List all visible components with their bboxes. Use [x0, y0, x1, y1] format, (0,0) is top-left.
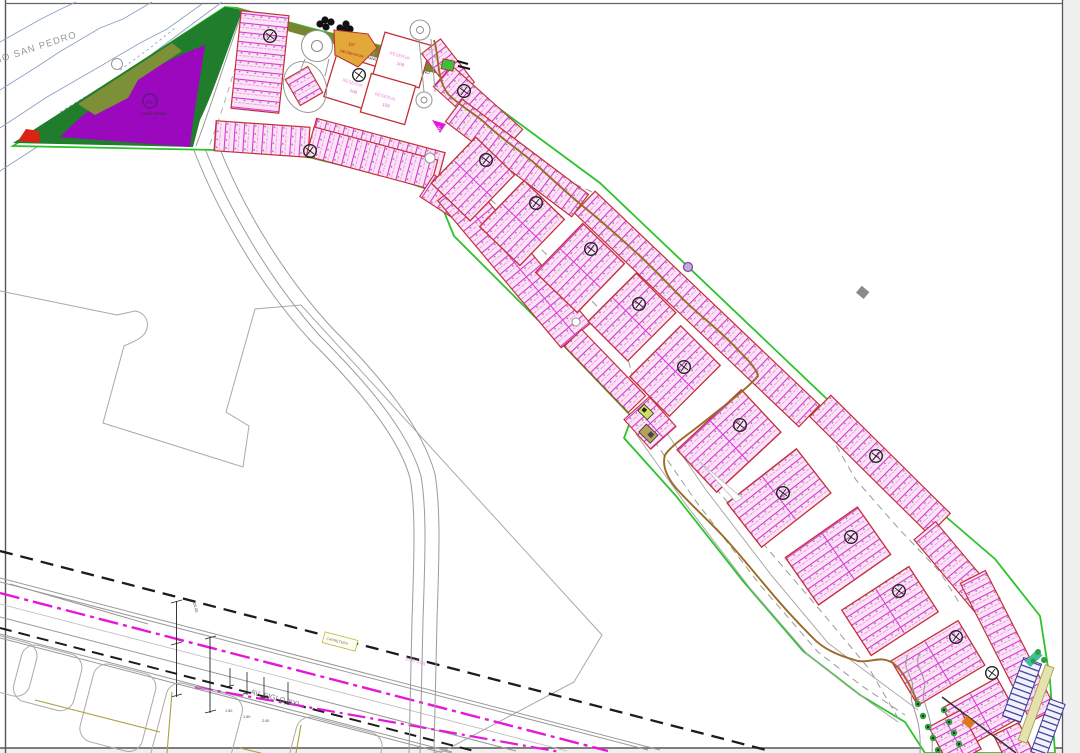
svg-text:AREA VERDE: AREA VERDE — [141, 111, 167, 116]
svg-text:1.50: 1.50 — [225, 709, 232, 713]
svg-text:M17: M17 — [146, 100, 156, 106]
svg-text:15: 15 — [434, 127, 441, 133]
svg-text:2.00: 2.00 — [262, 719, 269, 723]
svg-text:1.50: 1.50 — [243, 715, 250, 719]
